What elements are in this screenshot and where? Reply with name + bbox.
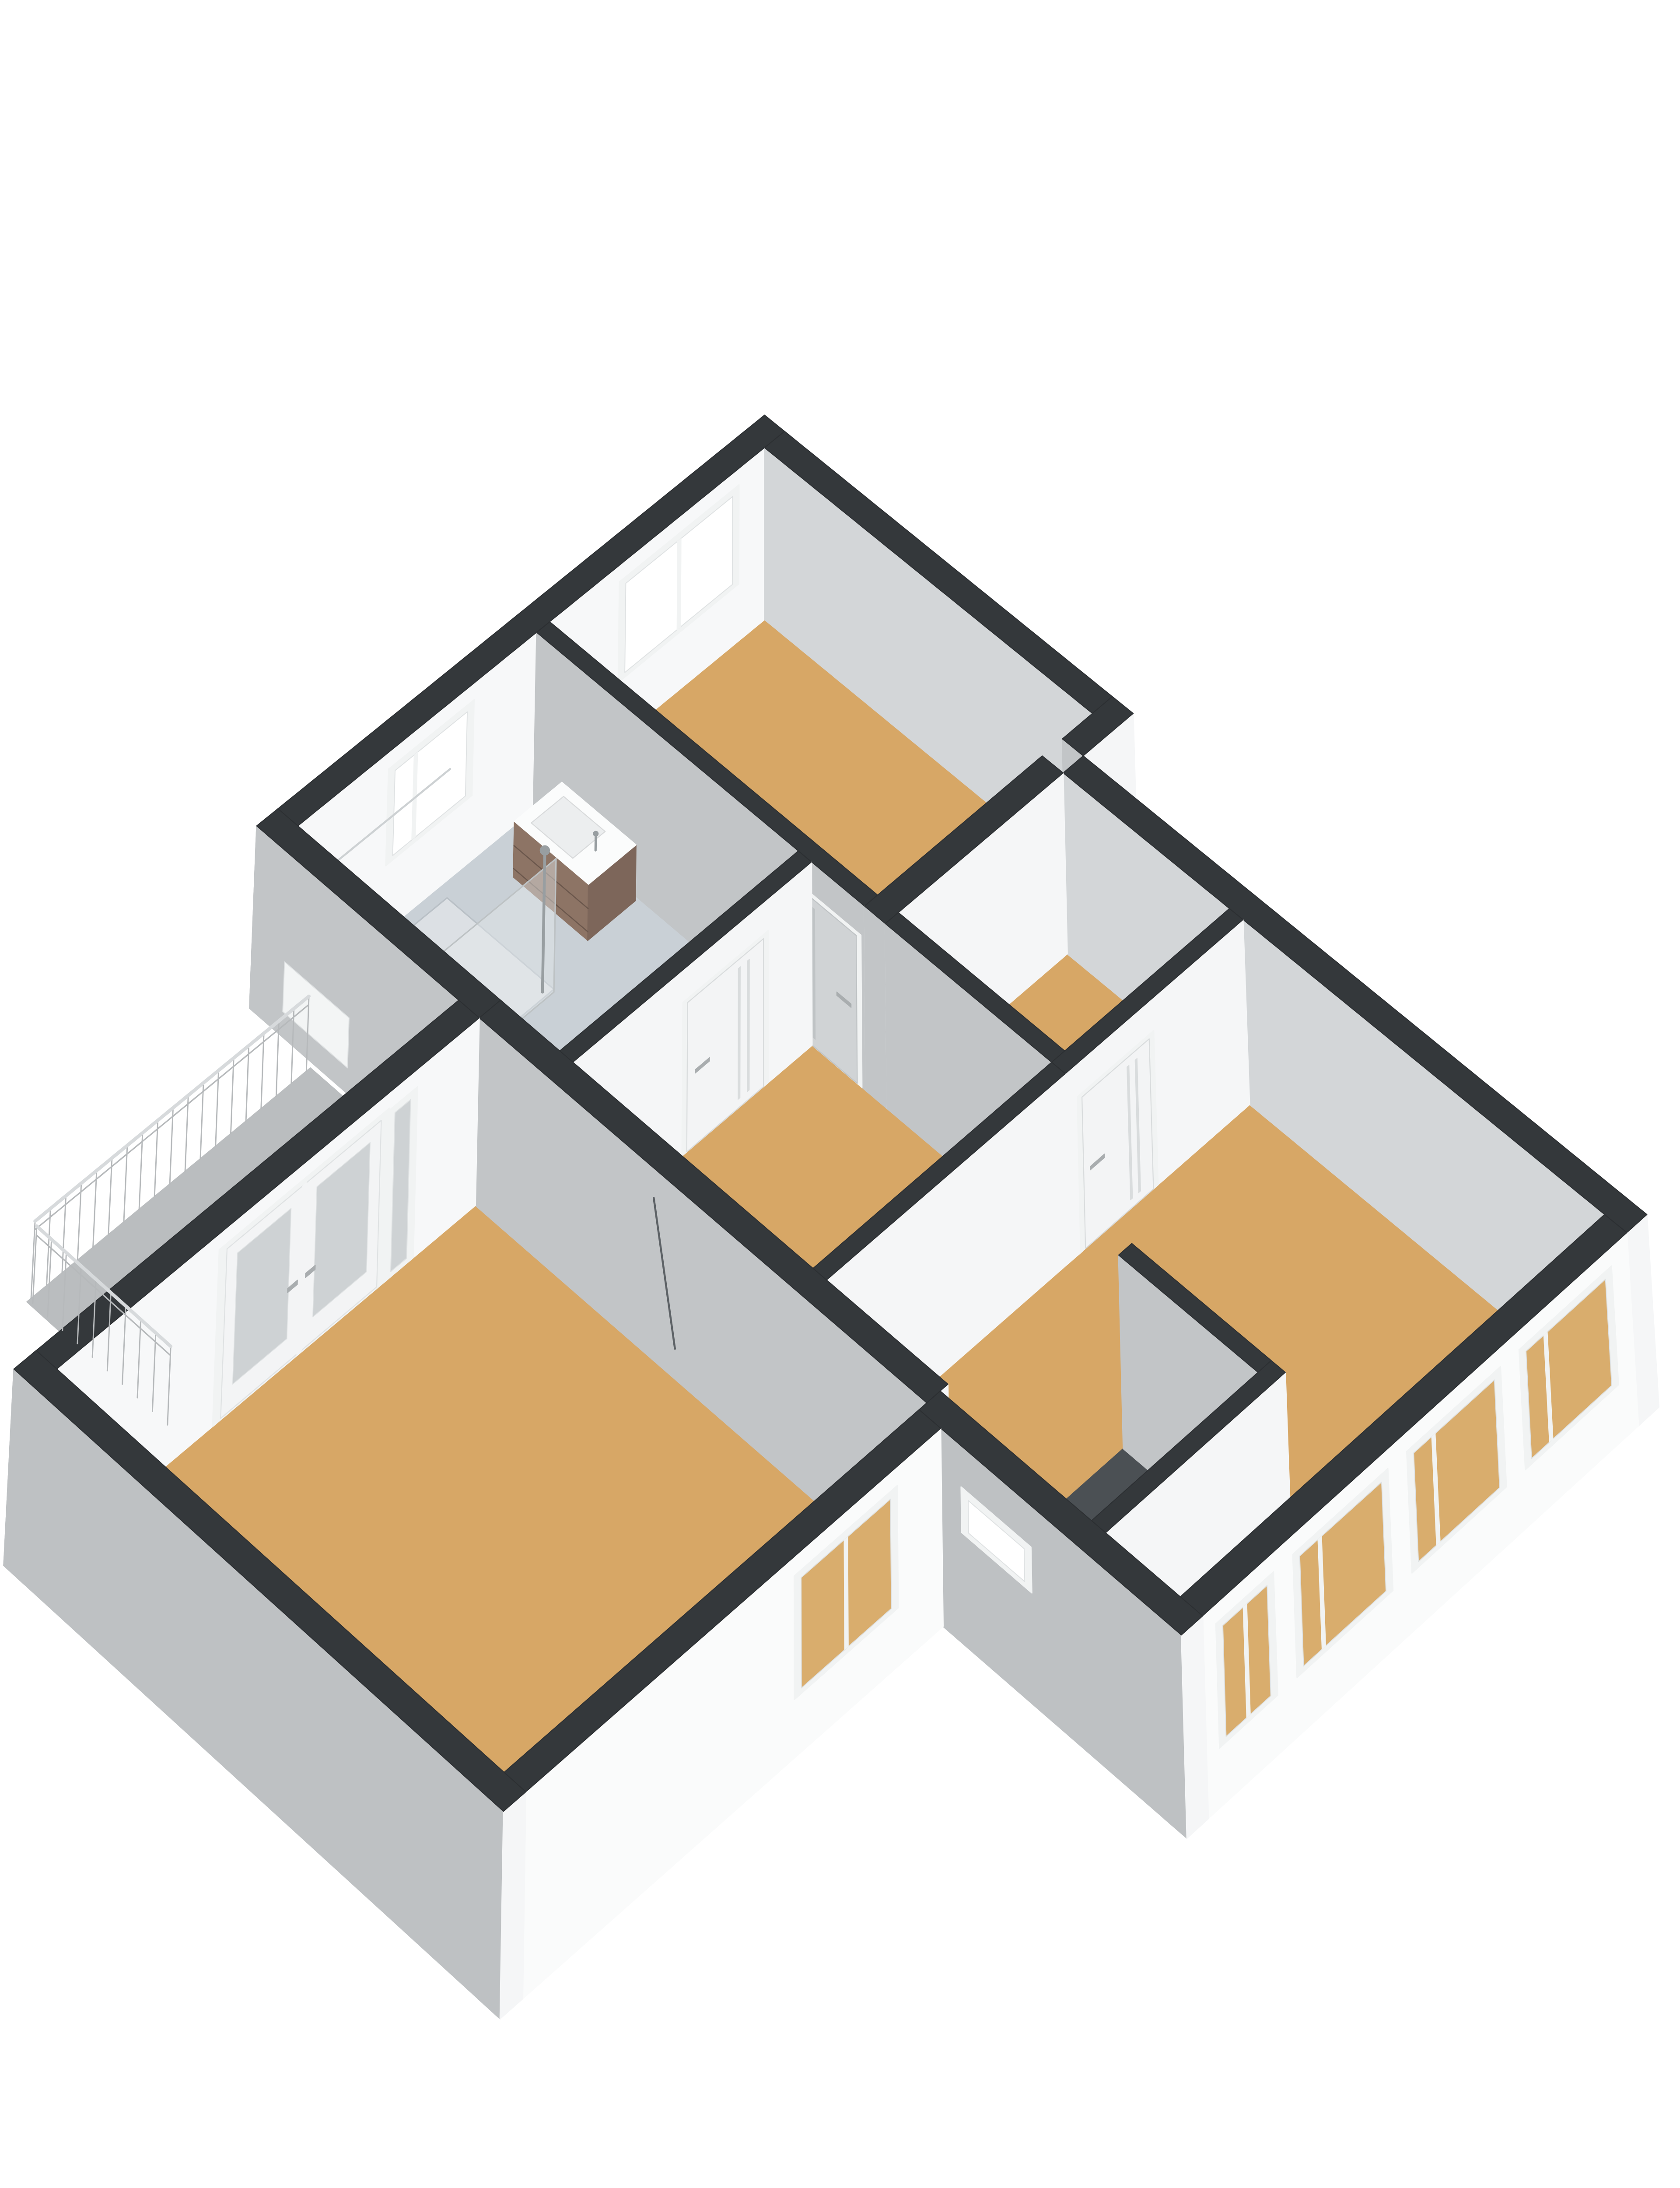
floorplan-viewport[interactable] <box>0 0 1680 2188</box>
balcony-railing-nw-post <box>216 1070 219 1146</box>
shower-head-icon <box>540 845 550 856</box>
door-bathroom-groove-0 <box>747 959 750 1092</box>
vanity-faucet-icon <box>593 831 598 837</box>
balcony-railing-nw-post <box>261 1033 264 1108</box>
door-bathroom-groove-1 <box>738 967 741 1100</box>
window-living-room-mullion-0 <box>844 1536 848 1650</box>
window-bedroom-top-mullion-0 <box>677 538 681 630</box>
balcony-railing-nw-post <box>246 1045 249 1121</box>
floorplan-3d-svg[interactable] <box>0 0 1680 2188</box>
door-bedroom-top-groove-1 <box>812 908 815 1040</box>
balcony-railing-nw-post <box>231 1058 234 1134</box>
wall-divider-blocks-face-sw <box>864 906 887 1109</box>
wall-living-sw-face-se <box>500 1792 526 2019</box>
